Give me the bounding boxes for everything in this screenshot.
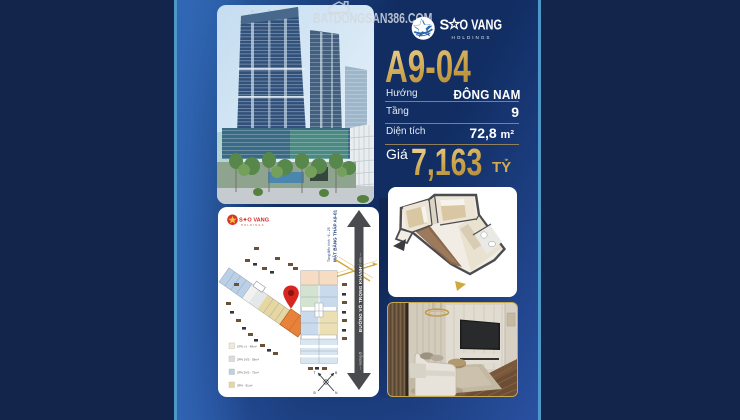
svg-text:2PN 1VS · 59m²: 2PN 1VS · 59m² [237, 358, 259, 362]
svg-text:B: B [335, 371, 338, 375]
svg-text:−− Hướng đi: −− Hướng đi [359, 352, 363, 370]
svg-text:O VANG: O VANG [460, 17, 503, 33]
svg-text:ĐƯỜNG VÕ TRỌNG KHÁNH: ĐƯỜNG VÕ TRỌNG KHÁNH [356, 266, 363, 332]
svg-text:S✦O VANG: S✦O VANG [239, 217, 269, 224]
svg-text:MẶT BẰNG THÁP A9-01: MẶT BẰNG THÁP A9-01 [331, 209, 338, 262]
svg-text:S: S [440, 17, 450, 33]
svg-text:3PN · 91m²: 3PN · 91m² [237, 384, 252, 388]
svg-text:1PN +1 · 48m²: 1PN +1 · 48m² [237, 345, 257, 349]
svg-text:HOLDINGS: HOLDINGS [241, 224, 265, 227]
svg-text:Đ: Đ [314, 391, 317, 395]
svg-text:HOLDINGS: HOLDINGS [452, 35, 492, 40]
svg-text:Tố Hữu −−: Tố Hữu −− [359, 252, 363, 268]
svg-text:2PN 2VS · 72m²: 2PN 2VS · 72m² [237, 371, 259, 375]
svg-text:T: T [314, 371, 316, 375]
svg-text:N: N [335, 391, 338, 395]
svg-text:Tầng điển hình · 6→25: Tầng điển hình · 6→25 [327, 227, 331, 262]
